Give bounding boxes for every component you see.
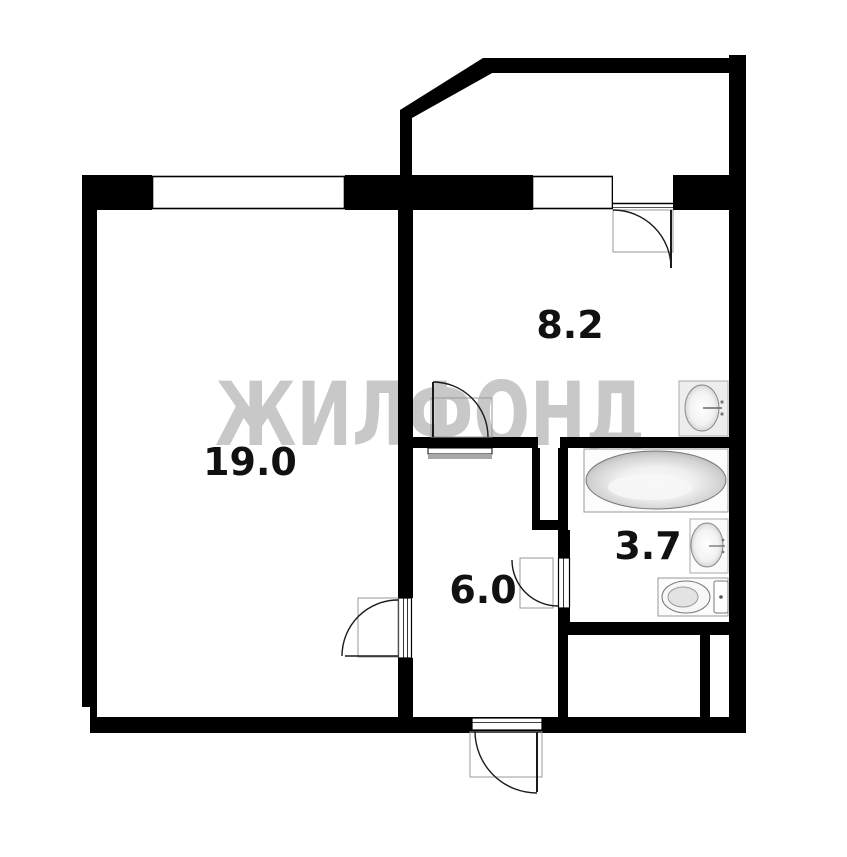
bathroom-top-wall bbox=[560, 437, 729, 448]
kitchen-sink-icon bbox=[679, 381, 728, 436]
living-room-divider-wall-upper bbox=[398, 210, 413, 598]
kitchen-hall-door-threshold bbox=[428, 448, 492, 454]
toilet-button bbox=[719, 595, 723, 599]
floor-plan: ЖИЛФОНД bbox=[0, 0, 847, 857]
kitchen-sink-tap-dot1 bbox=[720, 400, 723, 403]
washbasin-tap-dot1 bbox=[722, 539, 725, 542]
kitchen-area-label: 8.2 bbox=[536, 303, 603, 347]
washbasin-basin bbox=[691, 523, 723, 567]
kitchen-hallway-wall bbox=[413, 437, 538, 448]
bathroom-left-wall-lower bbox=[558, 608, 570, 622]
outer-wall-left bbox=[82, 175, 97, 707]
kitchen-window bbox=[533, 177, 613, 209]
vent-shaft-cap bbox=[532, 520, 568, 530]
toilet-bowl-inner bbox=[668, 587, 698, 607]
vent-shaft-left-bar bbox=[532, 448, 540, 520]
closet-left-wall bbox=[558, 635, 568, 717]
kitchen-sink-tap-dot2 bbox=[720, 412, 723, 415]
washbasin-icon bbox=[690, 519, 728, 573]
balcony-wall-top bbox=[483, 58, 729, 73]
duct-wall-bar bbox=[700, 635, 710, 717]
hallway-area-label: 6.0 bbox=[449, 568, 516, 612]
toilet-icon bbox=[658, 578, 728, 616]
bathroom-door-slab bbox=[559, 558, 570, 608]
bathroom-left-wall-upper bbox=[558, 530, 570, 558]
living-room-door-slab bbox=[399, 598, 412, 658]
living-room-window bbox=[153, 177, 345, 209]
outer-wall-top-right-segment bbox=[673, 175, 729, 210]
balcony-door-opening bbox=[613, 175, 673, 210]
bathroom-area-label: 3.7 bbox=[614, 524, 681, 568]
balcony-wall-left bbox=[400, 110, 412, 175]
outer-wall-bottom bbox=[90, 717, 746, 733]
entrance-door-slab bbox=[472, 718, 542, 730]
living-room-divider-wall-lower bbox=[398, 658, 413, 717]
bathtub-highlight bbox=[608, 474, 692, 500]
outer-wall-top-mid-segment bbox=[345, 175, 533, 210]
bathtub-icon bbox=[584, 449, 728, 512]
living-room-area-label: 19.0 bbox=[203, 440, 297, 484]
kitchen-hall-door-threshold-shadow bbox=[428, 454, 492, 459]
bathroom-bottom-wall bbox=[558, 622, 746, 635]
vent-shaft-right-bar bbox=[558, 448, 568, 530]
washbasin-tap-dot2 bbox=[722, 551, 725, 554]
